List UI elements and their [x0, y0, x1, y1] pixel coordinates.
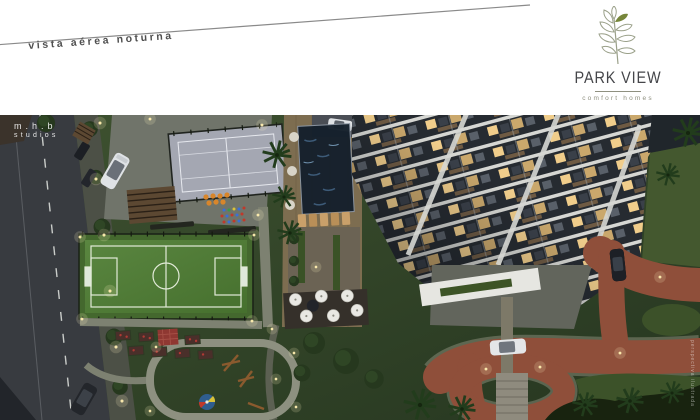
poster: vista aérea noturna PARK VIEW comfo	[0, 0, 700, 420]
island-walkway	[496, 373, 528, 420]
logo-tagline: comfort homes	[554, 95, 682, 102]
pergola	[127, 186, 178, 224]
parkview-logo: PARK VIEW comfort homes	[554, 6, 682, 102]
logo-divider	[595, 91, 641, 92]
sports-court	[168, 124, 287, 202]
studio-watermark: m.h.b studios	[14, 121, 59, 141]
lawn-pocket	[642, 304, 700, 336]
leaf-logo-icon	[590, 6, 646, 66]
umbrella-terrace	[283, 288, 369, 329]
white-sedan	[490, 338, 527, 355]
hedge	[333, 235, 340, 290]
studio-watermark-line1: m.h.b	[14, 121, 59, 132]
header-band: vista aérea noturna PARK VIEW comfo	[0, 0, 700, 115]
side-watermark: perspectiva ilustrada	[689, 340, 695, 420]
pool	[298, 124, 355, 215]
play-mat	[157, 328, 178, 345]
studio-watermark-line2: studios	[14, 132, 59, 141]
soccer-field	[79, 234, 253, 319]
logo-title: PARK VIEW	[564, 68, 673, 88]
aerial-photo: m.h.b studios perspectiva ilustrada	[0, 115, 700, 420]
east-lawn	[642, 143, 700, 267]
brand-green-leaf	[615, 14, 628, 22]
